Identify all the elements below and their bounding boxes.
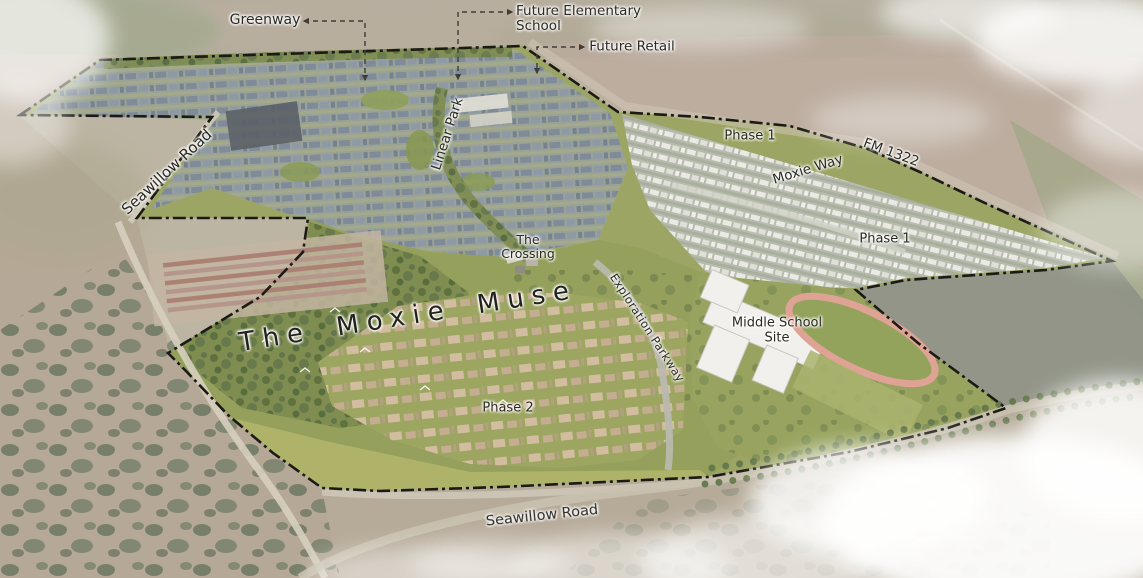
label-future-elementary-school: Future Elementary School: [516, 4, 644, 34]
label-future-retail: Future Retail: [589, 39, 674, 54]
label-middle-school-site: Middle School Site: [727, 316, 827, 345]
label-phase-1-east: Phase 1: [859, 233, 910, 248]
label-phase-1-north: Phase 1: [724, 130, 775, 145]
label-greenway: Greenway: [230, 13, 301, 29]
label-phase-2: Phase 2: [482, 402, 533, 417]
label-the-crossing: The Crossing: [493, 233, 563, 261]
master-plan-canvas: Greenway Future Elementary School Future…: [0, 0, 1143, 578]
